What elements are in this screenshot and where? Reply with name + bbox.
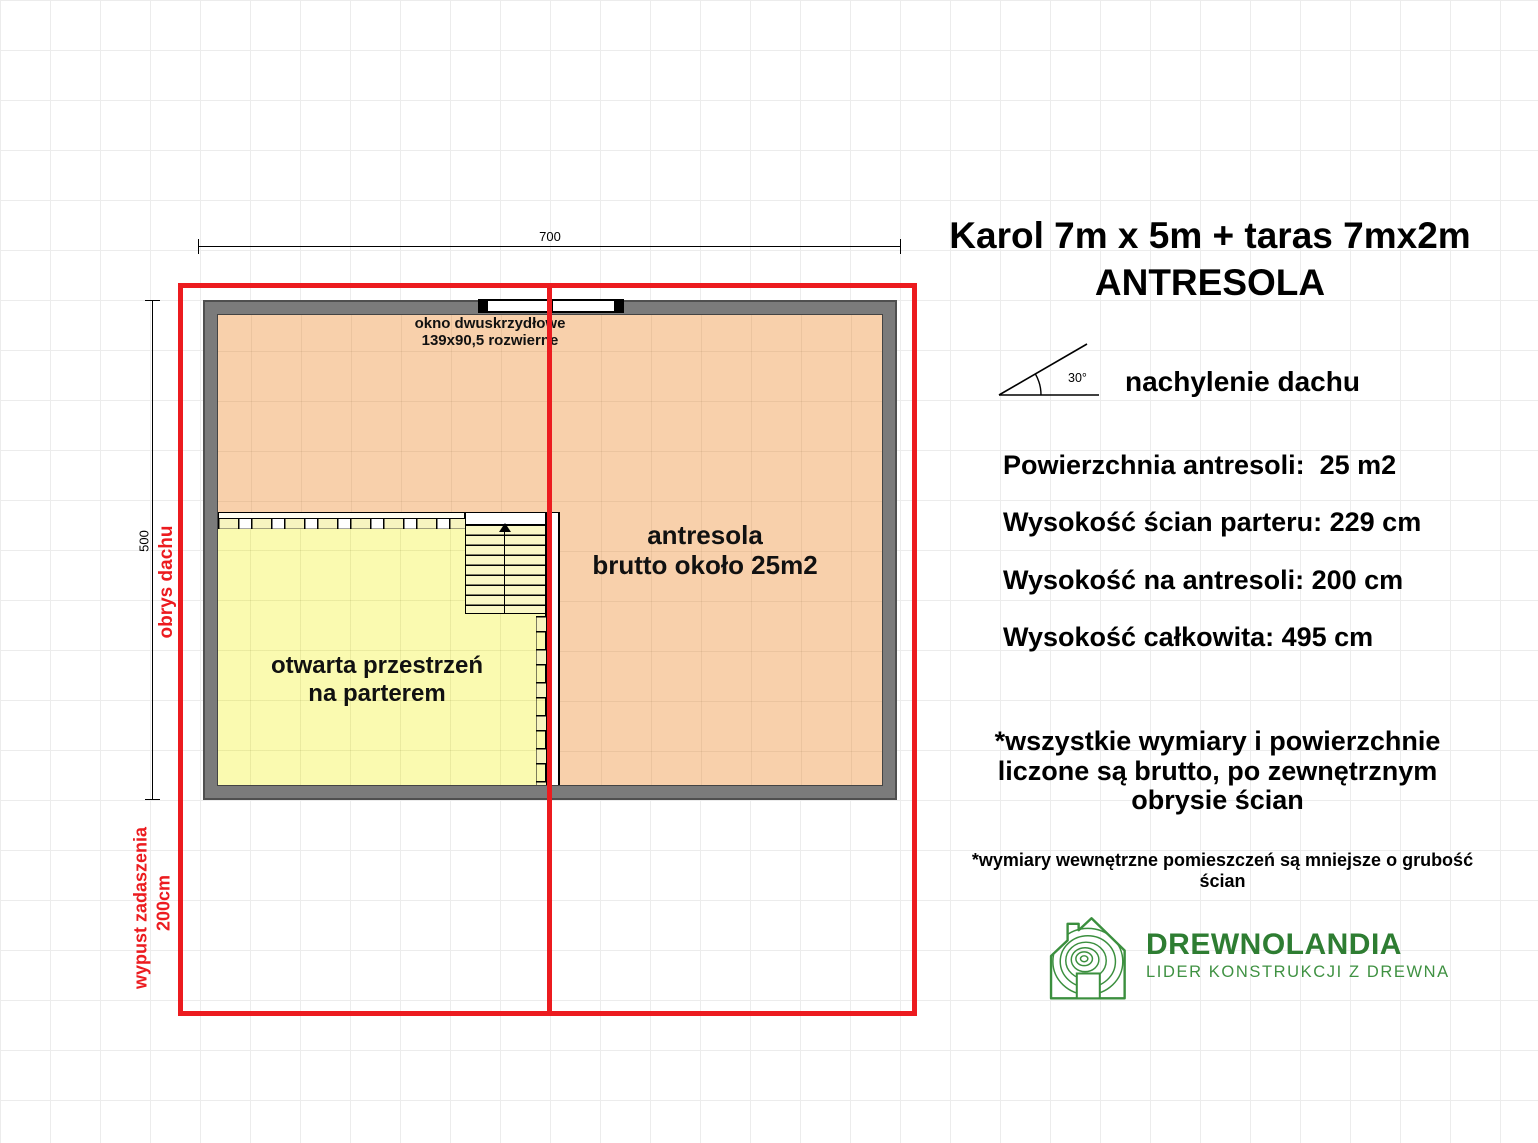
- spec-area: Powierzchnia antresoli: 25 m2: [1003, 450, 1396, 481]
- dimension-line-height: [152, 300, 153, 800]
- dimension-height-value: 500: [137, 530, 152, 552]
- roof-pitch-icon: 30°: [995, 338, 1105, 400]
- roof-pitch-caption: nachylenie dachu: [1125, 366, 1360, 398]
- company-name: DREWNOLANDIA: [1146, 929, 1450, 961]
- company-tagline: LIDER KONSTRUKCJI Z DREWNA: [1146, 961, 1450, 983]
- dimension-tick-left: [198, 239, 199, 254]
- spec-wall-height: Wysokość ścian parteru: 229 cm: [1003, 507, 1421, 538]
- floor-plan-sheet: { "header": { "title_line1": "Karol 7m x…: [0, 0, 1538, 1143]
- roof-outline-label: obrys dachu: [156, 526, 178, 639]
- wood-house-logo-icon: [1040, 910, 1132, 1002]
- note-secondary: *wymiary wewnętrzne pomieszczeń są mniej…: [950, 850, 1495, 892]
- company-logo: DREWNOLANDIA LIDER KONSTRUKCJI Z DREWNA: [1040, 910, 1450, 1002]
- page-title-line1: Karol 7m x 5m + taras 7mx2m: [920, 212, 1500, 259]
- note-primary: *wszystkie wymiary i powierzchnie liczon…: [985, 727, 1450, 816]
- spec-mezzanine-height: Wysokość na antresoli: 200 cm: [1003, 565, 1403, 596]
- dimension-tick-right: [900, 239, 901, 254]
- roof-ridge-line: [547, 283, 552, 1016]
- dimension-width-value: 700: [500, 229, 600, 244]
- overhang-label: wypust zadaszenia: [131, 827, 152, 989]
- company-logo-text: DREWNOLANDIA LIDER KONSTRUKCJI Z DREWNA: [1146, 929, 1450, 983]
- dimension-tick-bottom: [145, 799, 160, 800]
- roof-pitch-angle: 30°: [1068, 371, 1087, 385]
- page-title: Karol 7m x 5m + taras 7mx2m ANTRESOLA: [920, 212, 1500, 306]
- spec-total-height: Wysokość całkowita: 495 cm: [1003, 622, 1373, 653]
- page-title-line2: ANTRESOLA: [920, 259, 1500, 306]
- overhang-value: 200cm: [154, 875, 175, 931]
- dimension-tick-top: [145, 300, 160, 301]
- dimension-line-width: [198, 246, 901, 247]
